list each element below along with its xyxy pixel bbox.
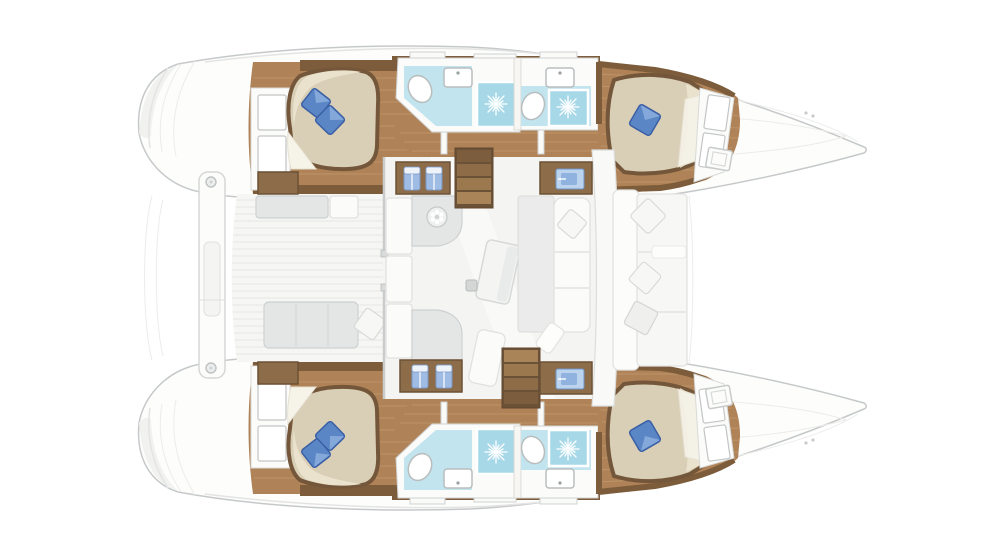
- vanity-locker-upper: [540, 162, 592, 194]
- cockpit-side-table: [330, 196, 358, 218]
- companionway-stairs-lower: [502, 348, 540, 408]
- cockpit-bench-upper: [256, 196, 328, 218]
- stern-crossbar-line: [156, 200, 163, 356]
- wall-cabinet: [386, 304, 412, 358]
- seat-tray: [652, 246, 686, 258]
- forward-cockpit: [613, 190, 693, 370]
- vanity-locker-lower: [540, 362, 592, 394]
- catamaran-floor-plan: [0, 0, 1007, 556]
- towel-locker-lower: [400, 360, 462, 392]
- step-locker: [258, 172, 298, 194]
- mast-step: [466, 280, 477, 291]
- salon: [381, 148, 619, 408]
- transom-platform: [199, 172, 225, 378]
- step-locker: [258, 362, 298, 384]
- towel-locker-upper: [396, 162, 450, 194]
- wall-cabinet: [386, 256, 412, 302]
- companionway-stairs-upper: [455, 148, 493, 208]
- floor-plan-drawing: [0, 0, 1007, 556]
- stern-crossbar-line: [145, 196, 153, 360]
- seat-front-edge: [689, 196, 693, 364]
- settee-back-panel: [518, 196, 554, 332]
- aft-cockpit: [145, 172, 387, 384]
- cockpit-bench-lower: [264, 302, 358, 348]
- wall-cabinet: [386, 198, 412, 254]
- lower-counter: [412, 310, 462, 360]
